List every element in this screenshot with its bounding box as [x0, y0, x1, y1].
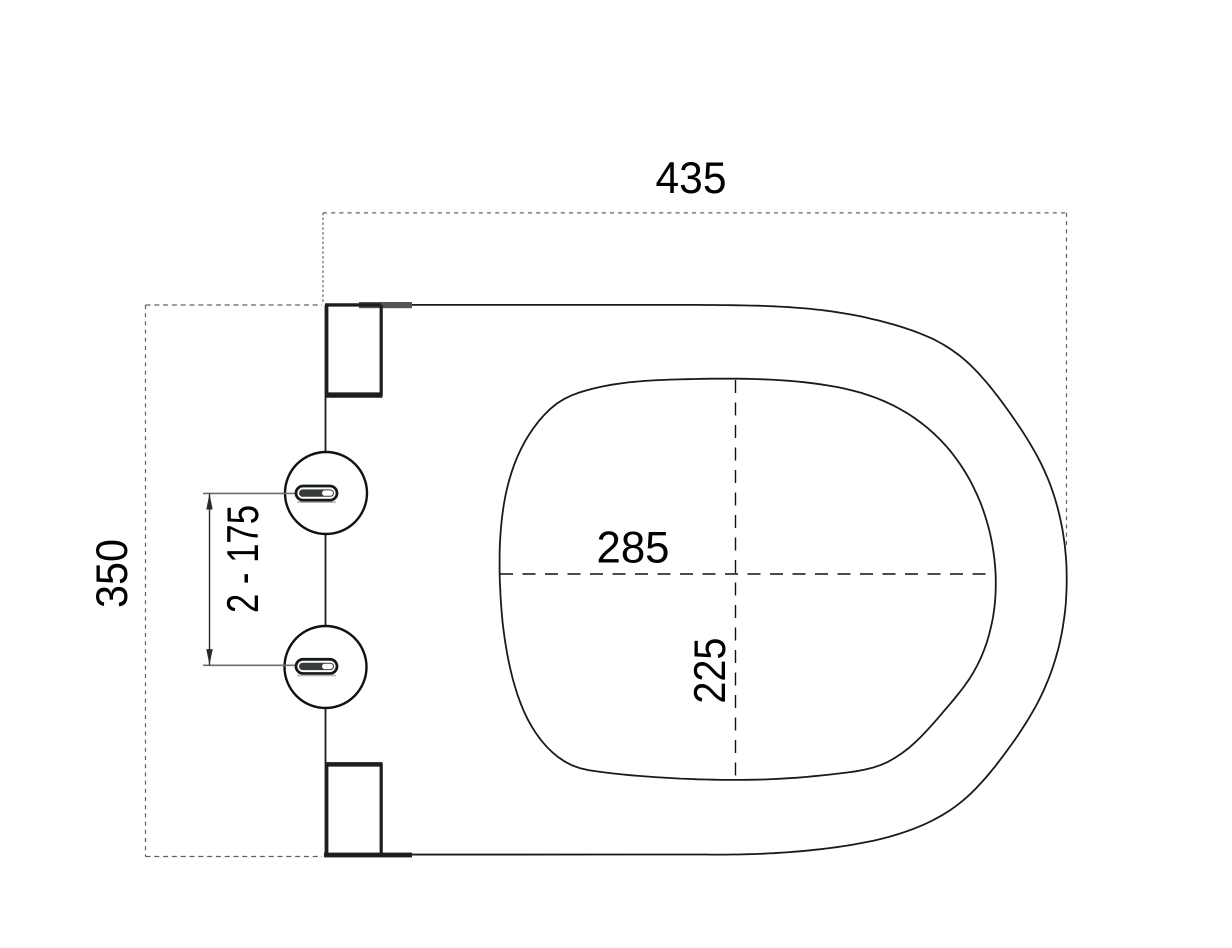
svg-text:435: 435	[656, 154, 727, 203]
svg-text:285: 285	[597, 523, 670, 572]
svg-text:350: 350	[88, 539, 137, 608]
svg-text:2 - 175: 2 - 175	[219, 505, 268, 613]
svg-text:225: 225	[686, 638, 735, 704]
